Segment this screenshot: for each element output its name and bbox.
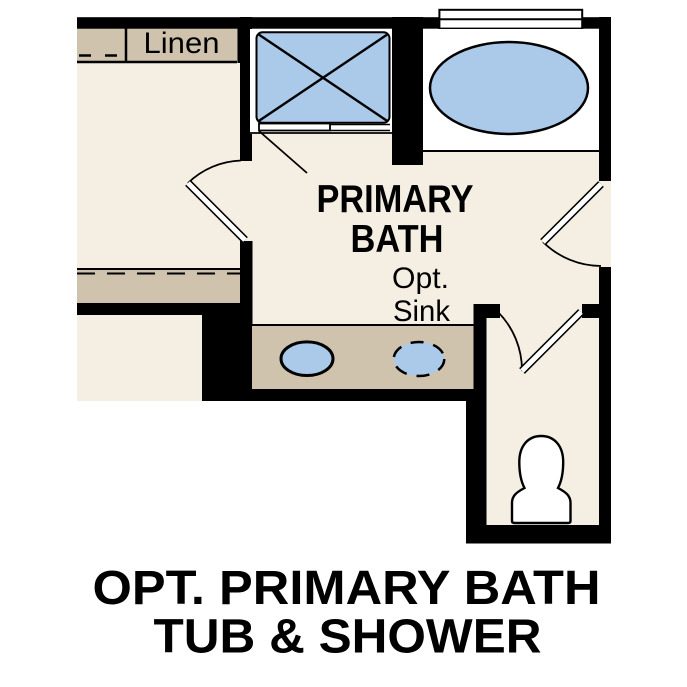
- svg-text:BATH: BATH: [351, 218, 444, 261]
- svg-text:Opt.: Opt.: [392, 262, 449, 295]
- svg-text:Linen: Linen: [144, 27, 220, 60]
- svg-text:PRIMARY: PRIMARY: [317, 178, 474, 221]
- svg-text:Sink: Sink: [393, 295, 451, 328]
- svg-text:OPT. PRIMARY BATH: OPT. PRIMARY BATH: [93, 562, 601, 615]
- svg-text:TUB & SHOWER: TUB & SHOWER: [154, 611, 542, 664]
